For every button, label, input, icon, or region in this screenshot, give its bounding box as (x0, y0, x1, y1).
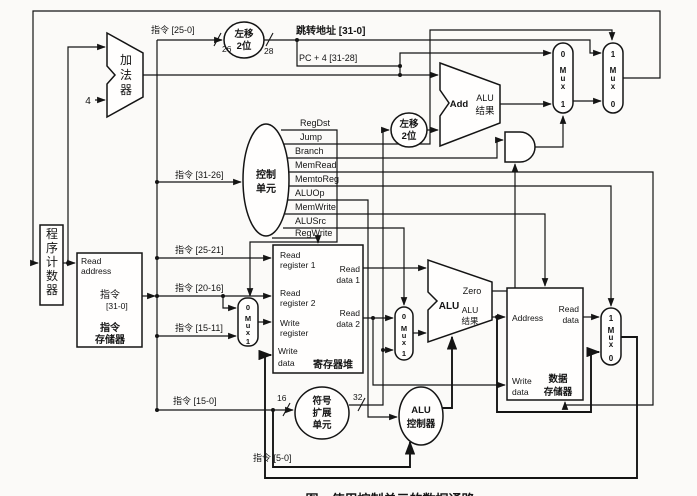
figure-caption: 图 使用控制单元的数据通路 (305, 492, 475, 496)
pc-label: 数 (46, 268, 58, 283)
mux-branch-label: 0 (561, 50, 566, 59)
alu-result-label: 结果 (461, 316, 479, 326)
wire-jump-address (264, 40, 601, 53)
mux-regdst-label: 1 (246, 337, 250, 346)
field-i15-11: 指令 [15-11] (175, 322, 223, 333)
signal-memtoreg: MemtoReg (295, 174, 339, 184)
sign-extend-label: 扩展 (312, 407, 332, 419)
adder-label: 加 (120, 53, 132, 67)
pc-label: 计 (46, 255, 58, 269)
dmem-readdata: Read (559, 304, 580, 314)
and-gate (505, 132, 535, 162)
shift-branch-label: 2位 (402, 130, 417, 142)
alu-control-label: ALU (411, 405, 431, 416)
dmem-address: Address (512, 313, 543, 323)
signal-memread: MemRead (295, 160, 337, 170)
regfile-wr: register (280, 328, 309, 338)
adder-label: 法 (120, 68, 132, 82)
dmem-writedata: data (512, 387, 529, 397)
alu-zero-label: Zero (463, 286, 482, 296)
alu-label: ALU (439, 301, 460, 312)
jump-address-label: 跳转地址 [31-0] (296, 24, 365, 37)
imem-name: 存储器 (95, 333, 126, 346)
mux-jump-label: 0 (611, 100, 616, 109)
wire-pc4-to-mux0 (400, 53, 551, 75)
dmem-name: 存储器 (543, 386, 573, 398)
field-i25-21: 指令 [25-21] (175, 244, 224, 255)
shift-top-label: 左移 (233, 28, 254, 40)
mux-jump-label: 1 (611, 50, 616, 59)
field-i5-0: 指令 [5-0] (253, 452, 292, 463)
field-i15-0: 指令 [15-0] (173, 395, 217, 406)
width-32: 32 (353, 392, 363, 402)
alu-shape (428, 260, 492, 342)
wire-and-out (535, 116, 563, 147)
control-unit-label: 控制 (256, 168, 276, 181)
imem-out-label: 指令 (100, 288, 120, 301)
wire-pc-to-adder (68, 47, 105, 263)
signal-jump: Jump (300, 132, 322, 142)
field-i25-0: 指令 [25-0] (151, 24, 195, 35)
signal-regwrite: RegWrite (295, 228, 332, 238)
branch-add-result: 结果 (475, 105, 495, 117)
signal-aluop: ALUOp (295, 188, 325, 198)
imem-out-bits: [31-0] (106, 301, 128, 311)
dmem-writedata: Write (512, 376, 532, 386)
dmem-readdata: data (562, 315, 579, 325)
datapath-diagram-canvas: 程 序 计 数 器 加 法 器 4 Read address 指令 [31-0]… (0, 0, 697, 496)
imem-name: 指令 (100, 321, 121, 334)
mux-writeback-label: 1 (609, 314, 614, 323)
imem-read-label: Read (81, 256, 102, 266)
wire-i20-16-to-mux (223, 296, 236, 308)
control-unit-label: 单元 (256, 182, 276, 195)
pc-label: 程 (46, 226, 58, 241)
mux-branch-label: 1 (561, 100, 566, 109)
alu-control-label: 控制器 (407, 418, 436, 430)
sign-extend-label: 符号 (312, 395, 332, 407)
signal-memwrite: MemWrite (295, 202, 336, 212)
regfile-rd2: Read (340, 308, 361, 318)
mux-writeback-label: x (609, 340, 614, 349)
branch-add-label: Add (450, 99, 469, 110)
signal-branch: Branch (295, 146, 324, 156)
shift-branch-label: 左移 (398, 118, 419, 130)
mux-alusrc-label: 1 (402, 349, 406, 358)
mux-alusrc-label: 0 (402, 312, 406, 321)
mux-jump-label: x (611, 82, 616, 91)
regfile-rr1: Read (280, 250, 301, 260)
regfile-rd2: data 2 (336, 319, 360, 329)
field-i20-16: 指令 [20-16] (175, 282, 224, 293)
regfile-rr2: Read (280, 288, 301, 298)
adder-label: 器 (120, 83, 132, 97)
regfile-rr1: register 1 (280, 260, 316, 270)
mux-writeback-label: 0 (609, 354, 614, 363)
shift-top-label: 2位 (237, 40, 252, 52)
mux-branch-label: x (561, 82, 566, 91)
pc4-3128-label: PC + 4 [31-28] (299, 53, 357, 63)
width-26: 26 (222, 44, 232, 54)
regfile-name: 寄存器堆 (313, 358, 353, 371)
width-16: 16 (277, 393, 287, 403)
mux-regdst-label: 0 (246, 303, 250, 312)
regfile-wr: Write (280, 318, 300, 328)
width-28: 28 (264, 46, 274, 56)
signal-alusrc: ALUSrc (295, 216, 327, 226)
regfile-wd: Write (278, 346, 298, 356)
const4-label: 4 (85, 96, 91, 107)
wire-zero (492, 164, 515, 291)
regfile-rd1: Read (340, 264, 361, 274)
regfile-rr2: register 2 (280, 298, 316, 308)
wire-aluctrl-out (441, 337, 452, 408)
sign-extend-label: 单元 (312, 419, 332, 431)
branch-add-result: ALU (476, 93, 494, 103)
imem-address-label: address (81, 266, 111, 276)
pc-label: 序 (46, 240, 58, 255)
field-i31-26: 指令 [31-26] (175, 169, 224, 180)
pc-label: 器 (46, 283, 58, 297)
dmem-name: 数据 (547, 373, 568, 385)
regfile-wd: data (278, 358, 295, 368)
alu-result-label: ALU (462, 305, 479, 315)
signal-regdst: RegDst (300, 118, 331, 128)
mips-datapath-figure: 程 序 计 数 器 加 法 器 4 Read address 指令 [31-0]… (0, 0, 697, 496)
alu-control-unit (399, 387, 443, 445)
regfile-rd1: data 1 (336, 275, 360, 285)
